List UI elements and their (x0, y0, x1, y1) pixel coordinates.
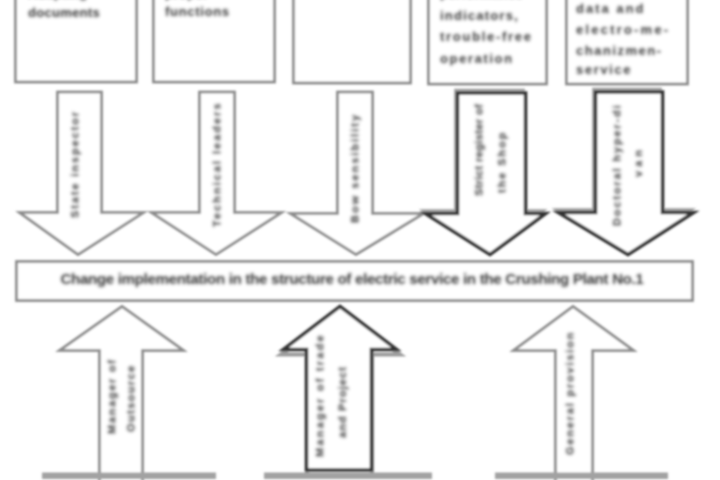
svg-text:trouble-free: trouble-free (440, 29, 533, 44)
svg-text:performance: performance (440, 0, 523, 1)
svg-text:Technical leaders: Technical leaders (212, 101, 224, 227)
svg-text:electro-me-: electro-me- (576, 22, 670, 37)
svg-text:Manager of trade: Manager of trade (315, 333, 327, 457)
svg-text:and Project: and Project (337, 366, 349, 438)
svg-text:Doctoral hyper-di: Doctoral hyper-di (612, 103, 624, 226)
svg-text:van: van (633, 146, 645, 177)
svg-text:Adapting: Adapting (28, 0, 88, 1)
svg-text:General provision: General provision (565, 331, 577, 455)
svg-text:operation: operation (440, 51, 514, 66)
svg-text:functions: functions (165, 4, 230, 19)
svg-text:Manager of: Manager of (107, 358, 119, 434)
svg-text:chanizmen-: chanizmen- (576, 43, 663, 58)
svg-text:indicators,: indicators, (440, 8, 519, 23)
svg-text:State inspector: State inspector (70, 110, 82, 218)
svg-text:Bow sensibility: Bow sensibility (350, 113, 362, 223)
svg-text:Strict register of: Strict register of (474, 104, 486, 196)
svg-text:Outsource: Outsource (126, 364, 138, 432)
svg-text:Change implementation in the s: Change implementation in the structure o… (60, 271, 643, 288)
svg-text:documents: documents (28, 5, 100, 20)
svg-text:data and: data and (576, 1, 645, 16)
svg-text:the Shop: the Shop (497, 131, 509, 193)
svg-text:proper: proper (165, 0, 209, 1)
svg-text:service: service (576, 62, 632, 77)
